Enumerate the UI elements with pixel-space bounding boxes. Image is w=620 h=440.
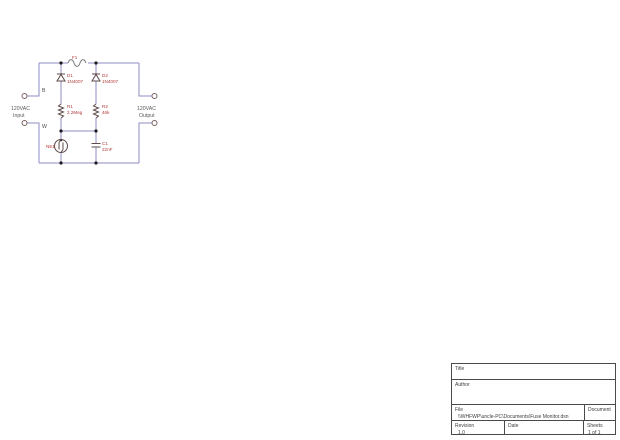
title-block-row-revision: Revision 1.0 Date Sheets 1 of 1 (452, 421, 615, 434)
diode-d2-value: 1N4007 (102, 79, 119, 84)
title-block-row-title: Title (452, 364, 615, 380)
sheets-label: Sheets (584, 421, 615, 429)
wire-input-neutral[interactable] (27, 123, 39, 163)
terminal-output-hot[interactable] (152, 94, 157, 99)
file-value: \\WHFWP\uncle-PC\Documents\Fuse Monitor.… (452, 413, 584, 420)
date-label: Date (505, 421, 583, 429)
label-output-line2: Output (139, 113, 155, 119)
junction-dot (94, 61, 97, 64)
wire-output-hot[interactable] (139, 63, 152, 96)
author-label: Author (452, 380, 615, 388)
neon-bulb-symbol[interactable] (55, 140, 68, 153)
diode-d1-value: 1N4007 (67, 79, 84, 84)
fuse-symbol[interactable]: F1 (68, 55, 86, 66)
diode-d2-ref: D2 (102, 73, 108, 78)
resistor-r2-symbol[interactable] (94, 104, 99, 118)
terminal-input-neutral[interactable] (22, 121, 27, 126)
wire-output-neutral[interactable] (139, 123, 152, 163)
resistor-r1-ref: R1 (67, 104, 73, 109)
revision-value: 1.0 (452, 429, 504, 434)
resistor-r2-ref: R2 (102, 104, 108, 109)
date-cell: Date (505, 421, 584, 434)
junction-dot (94, 161, 97, 164)
title-block-row-author: Author (452, 380, 615, 405)
title-label: Title (452, 364, 615, 372)
author-cell: Author (452, 380, 615, 404)
wire-input-hot[interactable] (27, 63, 39, 96)
sheets-value: 1 of 1 (584, 429, 615, 434)
neon-ref: NE1 (46, 144, 55, 149)
terminal-input-hot[interactable] (22, 94, 27, 99)
junction-dot (59, 61, 62, 64)
capacitor-c1-symbol[interactable] (92, 144, 101, 148)
title-cell: Title (452, 364, 615, 379)
diode-d1-symbol[interactable] (57, 73, 65, 81)
resistor-r1-value: 2.2Meg (67, 110, 83, 115)
revision-label: Revision (452, 421, 504, 429)
junction-dot (94, 129, 97, 132)
diode-d2-symbol[interactable] (92, 73, 100, 81)
document-cell: Document (585, 405, 615, 420)
junction-dot (59, 129, 62, 132)
capacitor-c1-value: 22nF (102, 147, 113, 152)
revision-cell: Revision 1.0 (452, 421, 505, 434)
label-wire-w: W (42, 124, 47, 130)
document-label: Document (585, 405, 615, 413)
diode-d1-ref: D1 (67, 73, 73, 78)
schematic-page: F1 D1 1N4007 D2 1N4007 R1 2.2Meg R2 46k (0, 0, 620, 440)
label-input-line1: 120VAC (11, 106, 30, 112)
title-block-row-file: File \\WHFWP\uncle-PC\Documents\Fuse Mon… (452, 405, 615, 421)
label-output-line1: 120VAC (137, 106, 156, 112)
schematic-canvas[interactable]: F1 D1 1N4007 D2 1N4007 R1 2.2Meg R2 46k (0, 0, 220, 200)
junction-dot (59, 161, 62, 164)
resistor-r2-value: 46k (102, 110, 110, 115)
fuse-ref: F1 (72, 55, 78, 60)
terminal-output-neutral[interactable] (152, 121, 157, 126)
sheets-cell: Sheets 1 of 1 (584, 421, 615, 434)
label-input-line2: Input (13, 113, 25, 119)
file-cell: File \\WHFWP\uncle-PC\Documents\Fuse Mon… (452, 405, 585, 420)
resistor-r1-symbol[interactable] (59, 104, 64, 118)
capacitor-c1-ref: C1 (102, 141, 108, 146)
file-label: File (452, 405, 584, 413)
label-wire-b: B (42, 88, 46, 94)
title-block: Title Author File \\WHFWP\uncle-PC\Docum… (451, 363, 616, 435)
